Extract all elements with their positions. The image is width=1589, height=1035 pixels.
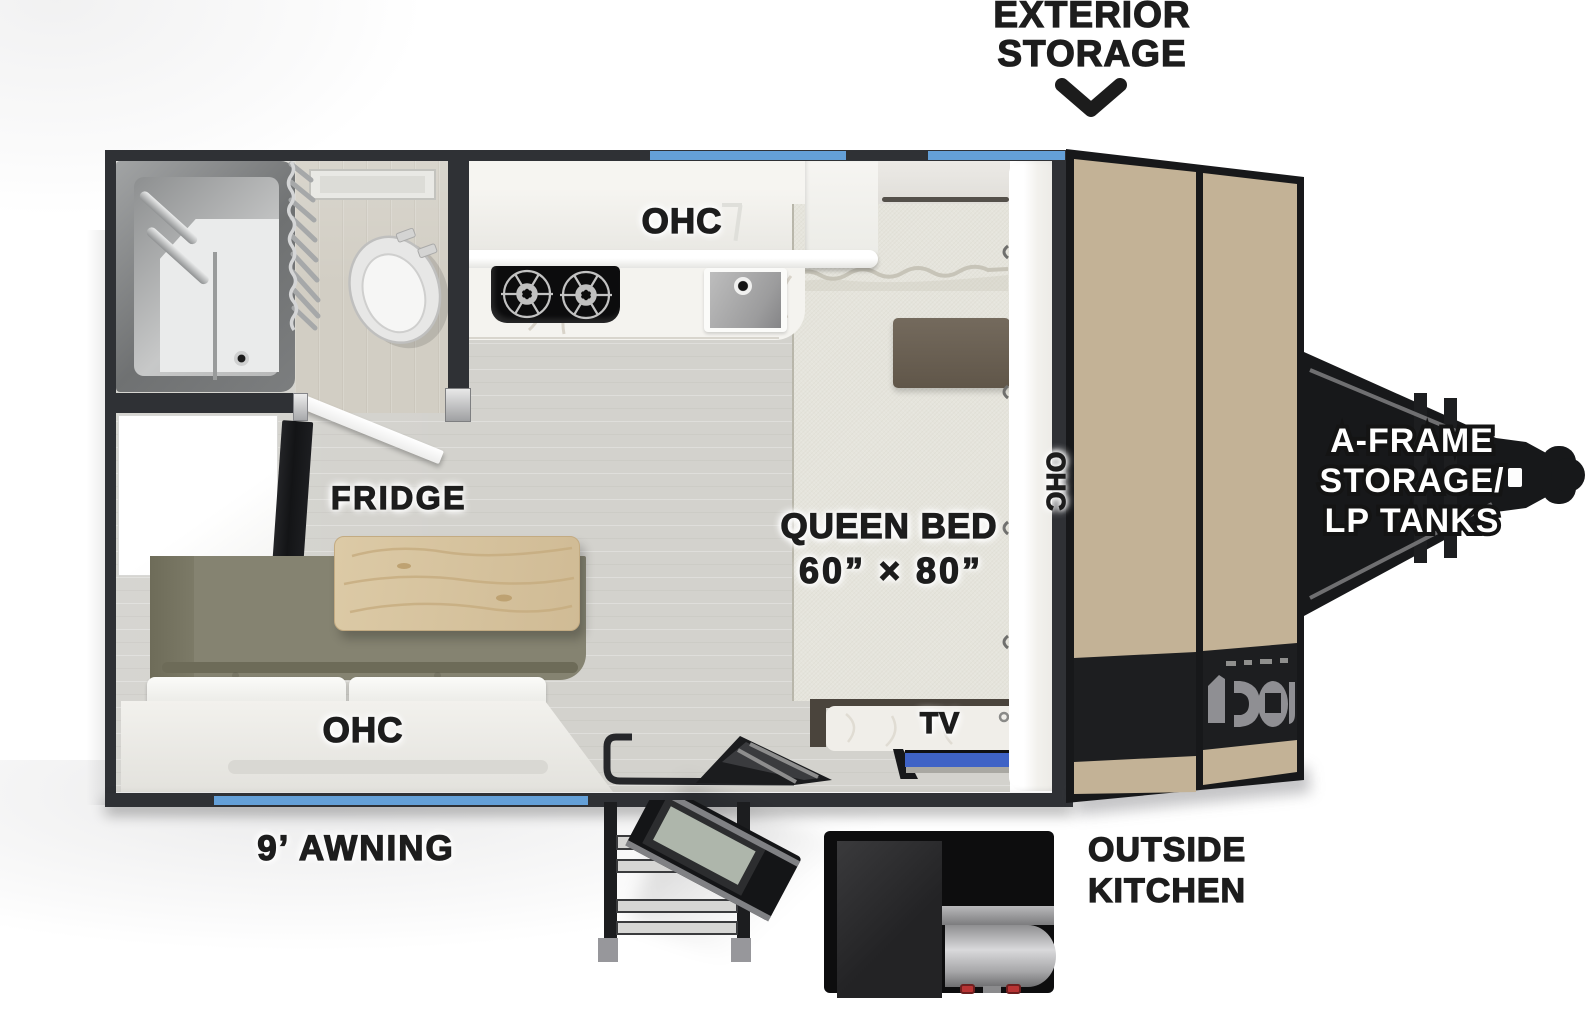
svg-text:LP TANKS: LP TANKS <box>1325 502 1500 540</box>
svg-text:STORAGE/: STORAGE/ <box>1320 462 1505 500</box>
svg-text:A-FRAME: A-FRAME <box>1330 422 1494 460</box>
